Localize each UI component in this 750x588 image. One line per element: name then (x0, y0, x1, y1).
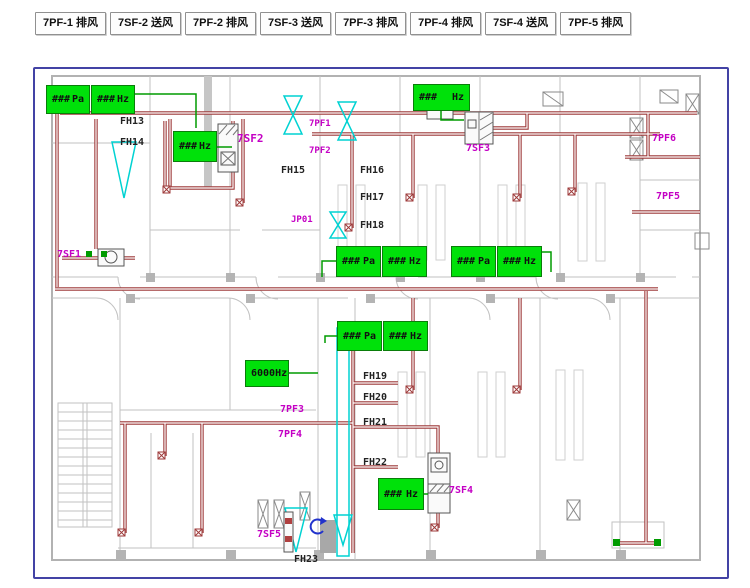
fan-label-7pf5: 7PF5 (656, 192, 680, 202)
value-readout-12: ###Hz (378, 478, 424, 510)
fan-button-7sf-2[interactable]: 7SF-2 送风 (110, 12, 181, 35)
fan-button-7sf-4[interactable]: 7SF-4 送风 (485, 12, 556, 35)
readout-unit: Hz (524, 256, 536, 267)
fan-label-7sf5: 7SF5 (257, 530, 281, 540)
fan-label-7pf4: 7PF4 (278, 430, 302, 440)
duct-label-fh14: FH14 (120, 138, 144, 148)
duct-label-fh22: FH22 (363, 458, 387, 468)
duct-label-fh17: FH17 (360, 193, 384, 203)
value-readout-8: ###Hz (497, 246, 542, 277)
fan-label-7pf3: 7PF3 (280, 405, 304, 415)
value-readout-7: ###Pa (451, 246, 496, 277)
readout-unit: Pa (363, 256, 375, 267)
value-readout-6: ###Hz (382, 246, 427, 277)
readout-value: ### (388, 256, 406, 267)
fan-label-jp01: JP01 (291, 216, 313, 225)
duct-label-fh23: FH23 (294, 555, 318, 565)
readout-value: ### (419, 92, 437, 103)
value-readout-3: ###Hz (173, 131, 217, 162)
readout-unit: Hz (406, 489, 418, 500)
readout-unit: Pa (364, 331, 376, 342)
readout-value: ### (179, 141, 197, 152)
fan-button-7pf-5[interactable]: 7PF-5 排风 (560, 12, 631, 35)
readout-value: ### (503, 256, 521, 267)
fan-toolbar: 7PF-1 排风7SF-2 送风7PF-2 排风7SF-3 送风7PF-3 排风… (35, 12, 631, 35)
value-readout-11: 6000Hz (245, 360, 289, 387)
duct-label-fh13: FH13 (120, 117, 144, 127)
readout-unit: Pa (478, 256, 490, 267)
duct-label-fh18: FH18 (360, 221, 384, 231)
value-readout-10: ###Hz (383, 321, 428, 351)
duct-label-fh16: FH16 (360, 166, 384, 176)
value-readout-5: ###Pa (336, 246, 381, 277)
fan-label-7sf1: 7SF1 (57, 250, 81, 260)
readout-value: ### (389, 331, 407, 342)
readout-value: ### (97, 94, 115, 105)
fan-label-7sf4: 7SF4 (449, 486, 473, 496)
fan-button-7pf-2[interactable]: 7PF-2 排风 (185, 12, 256, 35)
fan-label-7pf1: 7PF1 (309, 120, 331, 129)
duct-label-fh21: FH21 (363, 418, 387, 428)
duct-label-fh19: FH19 (363, 372, 387, 382)
fan-label-7pf6: 7PF6 (652, 134, 676, 144)
readout-value: ### (342, 256, 360, 267)
readout-unit: Hz (199, 141, 211, 152)
fan-label-7sf3: 7SF3 (466, 144, 490, 154)
fan-button-7pf-1[interactable]: 7PF-1 排风 (35, 12, 106, 35)
readout-unit: Hz (275, 368, 287, 379)
fan-button-7pf-4[interactable]: 7PF-4 排风 (410, 12, 481, 35)
readout-value: ### (52, 94, 70, 105)
readout-value: ### (343, 331, 361, 342)
fan-label-7pf2: 7PF2 (309, 147, 331, 156)
duct-label-fh20: FH20 (363, 393, 387, 403)
readout-unit: Pa (72, 94, 84, 105)
value-readout-2: ###Hz (91, 85, 135, 114)
readout-unit: Hz (452, 92, 464, 103)
fan-button-7sf-3[interactable]: 7SF-3 送风 (260, 12, 331, 35)
duct-label-fh15: FH15 (281, 166, 305, 176)
readout-value: ### (384, 489, 402, 500)
value-readout-4: ###Hz (413, 84, 470, 111)
readout-unit: Hz (410, 331, 422, 342)
readout-unit: Hz (409, 256, 421, 267)
fan-button-7pf-3[interactable]: 7PF-3 排风 (335, 12, 406, 35)
hvac-scada-screen: 7PF-1 排风7SF-2 送风7PF-2 排风7SF-3 送风7PF-3 排风… (0, 0, 750, 588)
readout-unit: Hz (117, 94, 129, 105)
readout-value: 6000 (251, 368, 275, 379)
readout-value: ### (457, 256, 475, 267)
value-readout-9: ###Pa (337, 321, 382, 351)
fan-label-7sf2: 7SF2 (237, 133, 264, 144)
value-readout-1: ###Pa (46, 85, 90, 114)
overlay-layer: ###Pa###Hz###Hz###Hz###Pa###Hz###Pa###Hz… (0, 0, 750, 588)
